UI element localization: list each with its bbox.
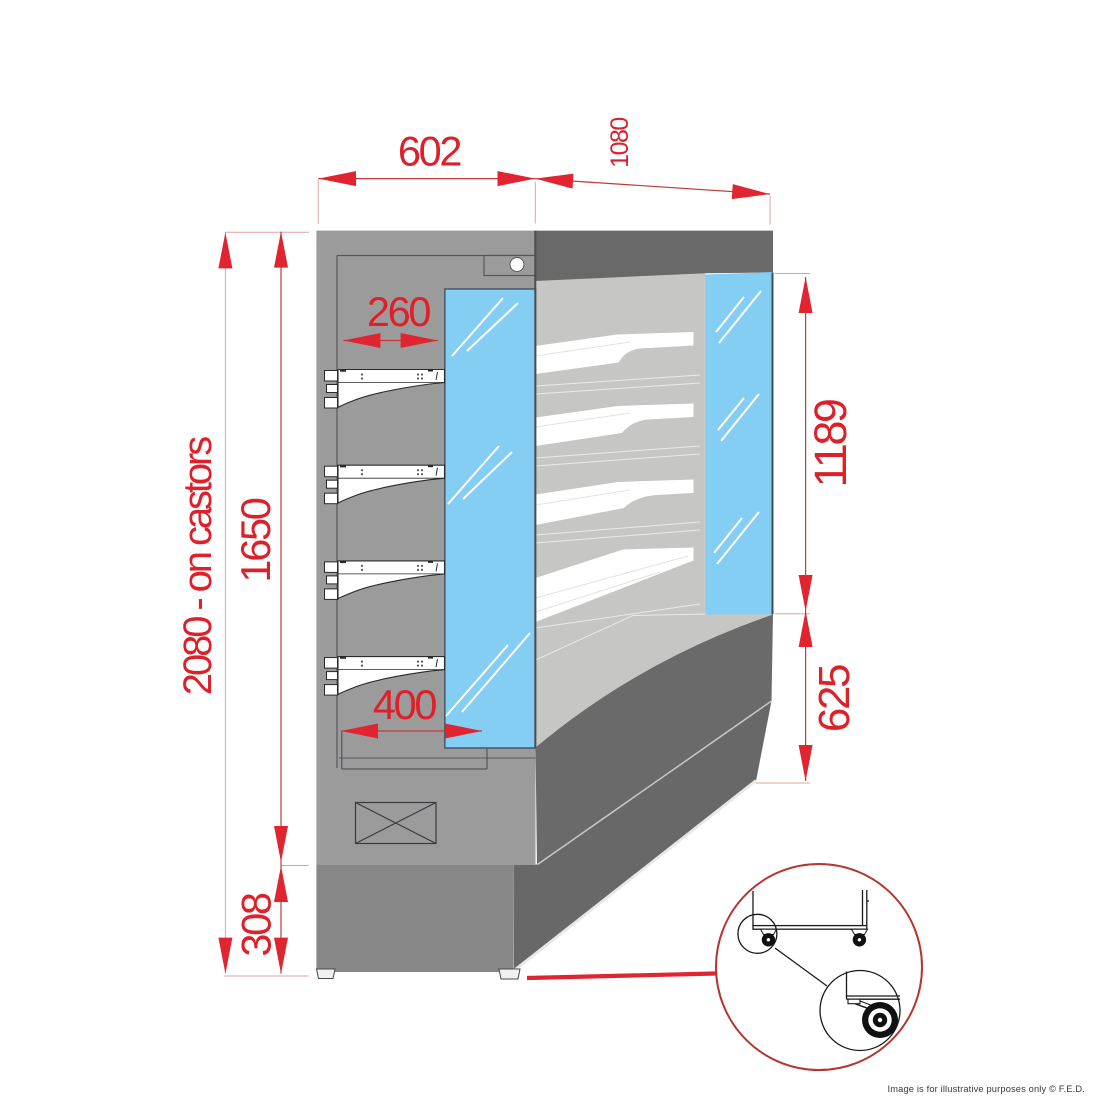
- svg-text:2080 - on castors: 2080 - on castors: [176, 437, 220, 695]
- svg-text:Image is for illustrative purp: Image is for illustrative purposes only …: [888, 1084, 1085, 1094]
- svg-text:260: 260: [367, 288, 431, 335]
- svg-text:400: 400: [373, 681, 437, 728]
- svg-text:602: 602: [398, 128, 461, 175]
- svg-text:1650: 1650: [232, 498, 279, 582]
- svg-text:1189: 1189: [805, 400, 856, 487]
- svg-text:625: 625: [810, 665, 859, 732]
- svg-text:308: 308: [233, 893, 280, 957]
- svg-text:1080: 1080: [606, 118, 634, 168]
